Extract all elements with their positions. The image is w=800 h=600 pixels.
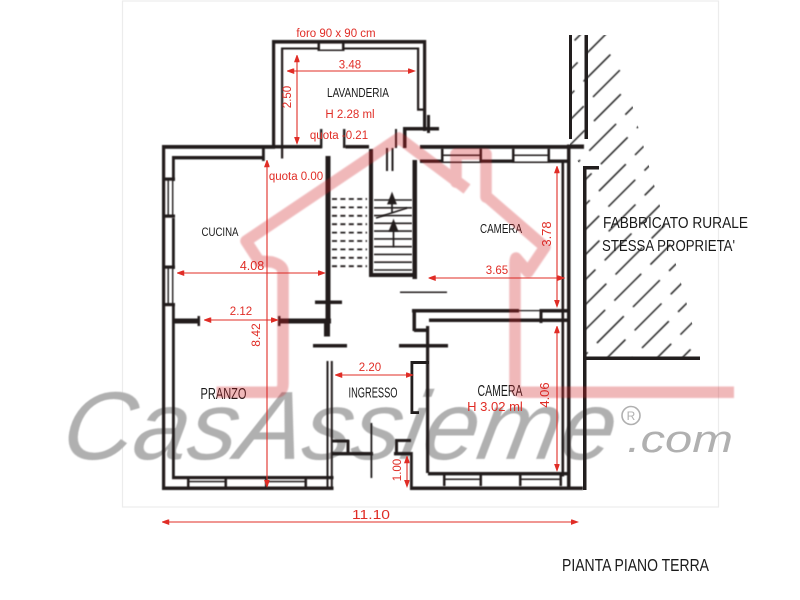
svg-text:FABBRICATO RURALE: FABBRICATO RURALE (603, 215, 748, 232)
svg-text:foro 90 x 90 cm: foro 90 x 90 cm (296, 28, 375, 40)
svg-text:INGRESSO: INGRESSO (349, 386, 398, 402)
svg-text:PIANTA PIANO TERRA: PIANTA PIANO TERRA (562, 555, 709, 575)
svg-text:quota -0.21: quota -0.21 (310, 130, 368, 142)
svg-text:11.10: 11.10 (352, 507, 390, 522)
svg-text:3.65: 3.65 (486, 265, 508, 277)
svg-text:LAVANDERIA: LAVANDERIA (327, 86, 390, 100)
svg-text:8.42: 8.42 (249, 323, 263, 347)
svg-text:3.48: 3.48 (339, 60, 361, 72)
svg-text:STESSA PROPRIETA': STESSA PROPRIETA' (602, 238, 735, 255)
svg-text:CUCINA: CUCINA (202, 227, 239, 239)
svg-text:2.50: 2.50 (282, 86, 294, 108)
svg-text:H 2.28 ml: H 2.28 ml (325, 109, 374, 121)
svg-text:H 3.02 ml: H 3.02 ml (467, 399, 523, 414)
svg-text:1.00: 1.00 (392, 459, 404, 481)
svg-text:2.20: 2.20 (359, 362, 381, 374)
svg-text:quota 0.00: quota 0.00 (269, 171, 323, 183)
svg-text:2.12: 2.12 (230, 306, 252, 318)
svg-text:.com: .com (627, 419, 733, 461)
